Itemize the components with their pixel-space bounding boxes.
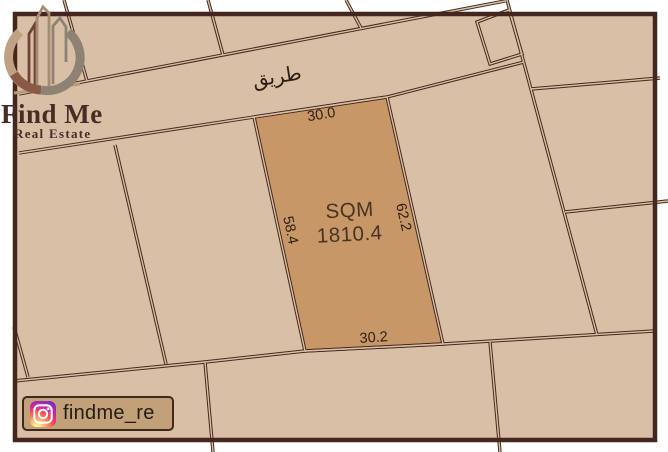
dim-bottom-label: 30.2 (359, 329, 388, 347)
real-estate-listing-image: طريق 30.0 30.2 58.4 62.2 SQM 1810.4 Find… (0, 0, 668, 452)
plot-area-unit: SQM (325, 198, 374, 223)
instagram-handle: findme_re (63, 402, 155, 425)
cadastral-map: طريق 30.0 30.2 58.4 62.2 SQM 1810.4 (0, 0, 668, 452)
brand-name: Find Me (1, 101, 103, 128)
instagram-badge: findme_re (22, 396, 174, 431)
brand-tagline: Real Estate (14, 127, 91, 140)
instagram-icon (30, 401, 56, 427)
plot-area-value: 1810.4 (316, 221, 383, 247)
